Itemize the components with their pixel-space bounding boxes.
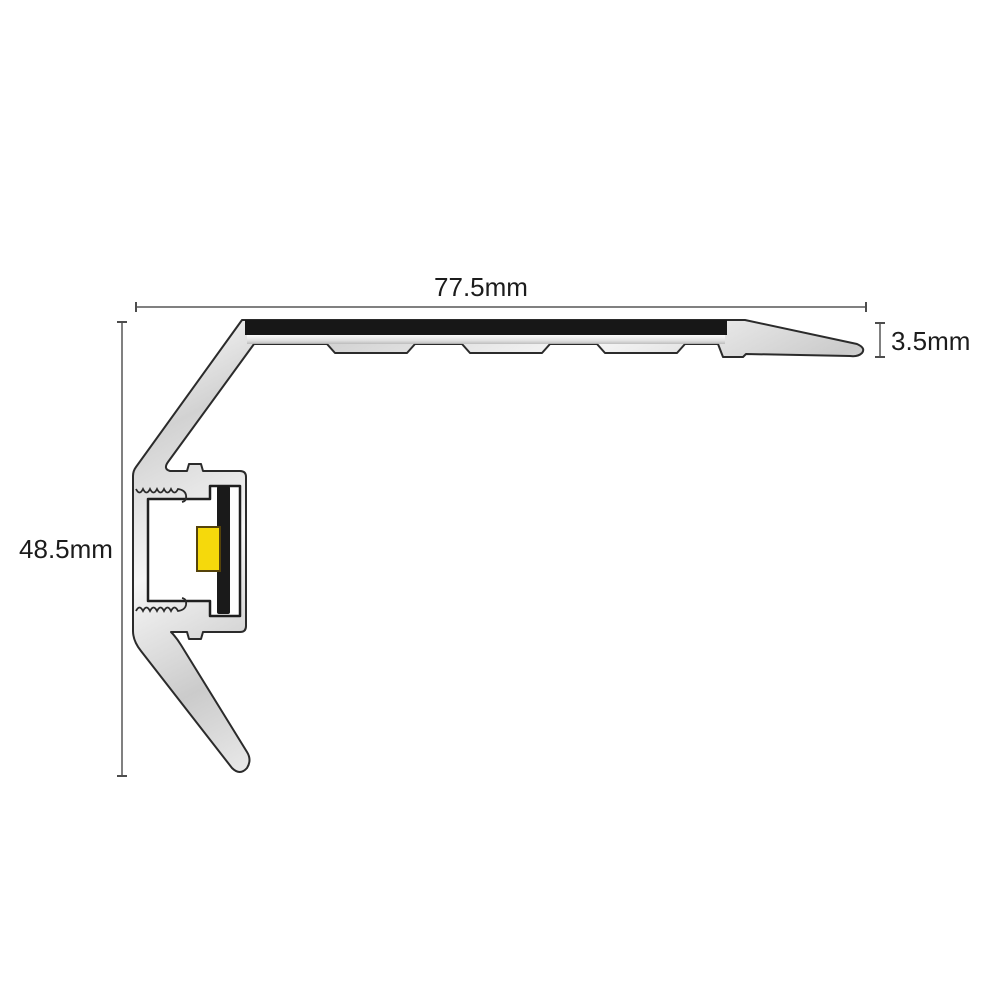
width-dimension-label: 77.5mm [434,272,528,302]
tread-face-highlight [247,335,725,344]
anti-slip-insert [245,320,727,335]
thickness-dimension-label: 3.5mm [891,326,970,356]
led-module [197,527,220,571]
height-dimension-label: 48.5mm [19,534,113,564]
thickness-dimension: 3.5mm [875,323,970,357]
height-dimension: 48.5mm [19,322,127,776]
stair-nosing-profile-drawing: 77.5mm 48.5mm 3.5mm [0,0,1000,1000]
profile-body [133,320,863,772]
width-dimension: 77.5mm [136,272,866,312]
technical-drawing-canvas: 77.5mm 48.5mm 3.5mm [0,0,1000,1000]
